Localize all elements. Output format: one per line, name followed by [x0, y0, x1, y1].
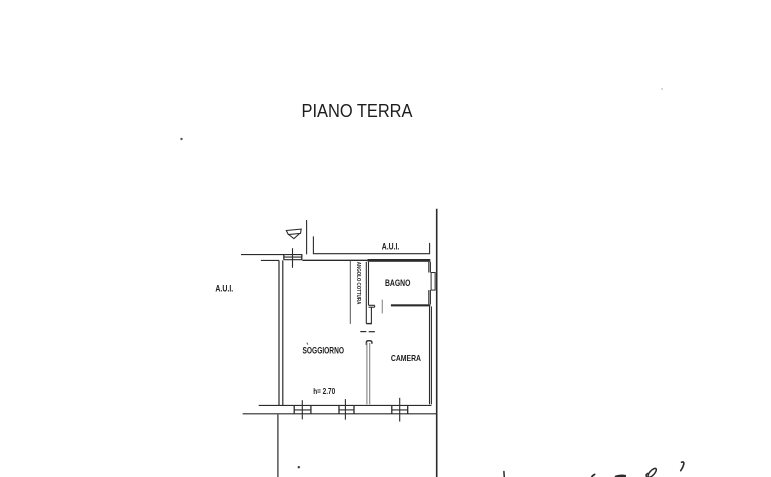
svg-text:SOGGIORNO: SOGGIORNO	[303, 346, 345, 356]
svg-text:ANGOLO COTTURA: ANGOLO COTTURA	[355, 262, 361, 305]
svg-text:CAMERA: CAMERA	[391, 353, 421, 363]
svg-text:PIANO TERRA: PIANO TERRA	[302, 101, 413, 121]
svg-text:A.U.I.: A.U.I.	[382, 241, 400, 251]
svg-text:BAGNO: BAGNO	[385, 278, 411, 288]
svg-text:h= 2.70: h= 2.70	[313, 386, 335, 396]
svg-text:A.U.I.: A.U.I.	[215, 283, 233, 293]
